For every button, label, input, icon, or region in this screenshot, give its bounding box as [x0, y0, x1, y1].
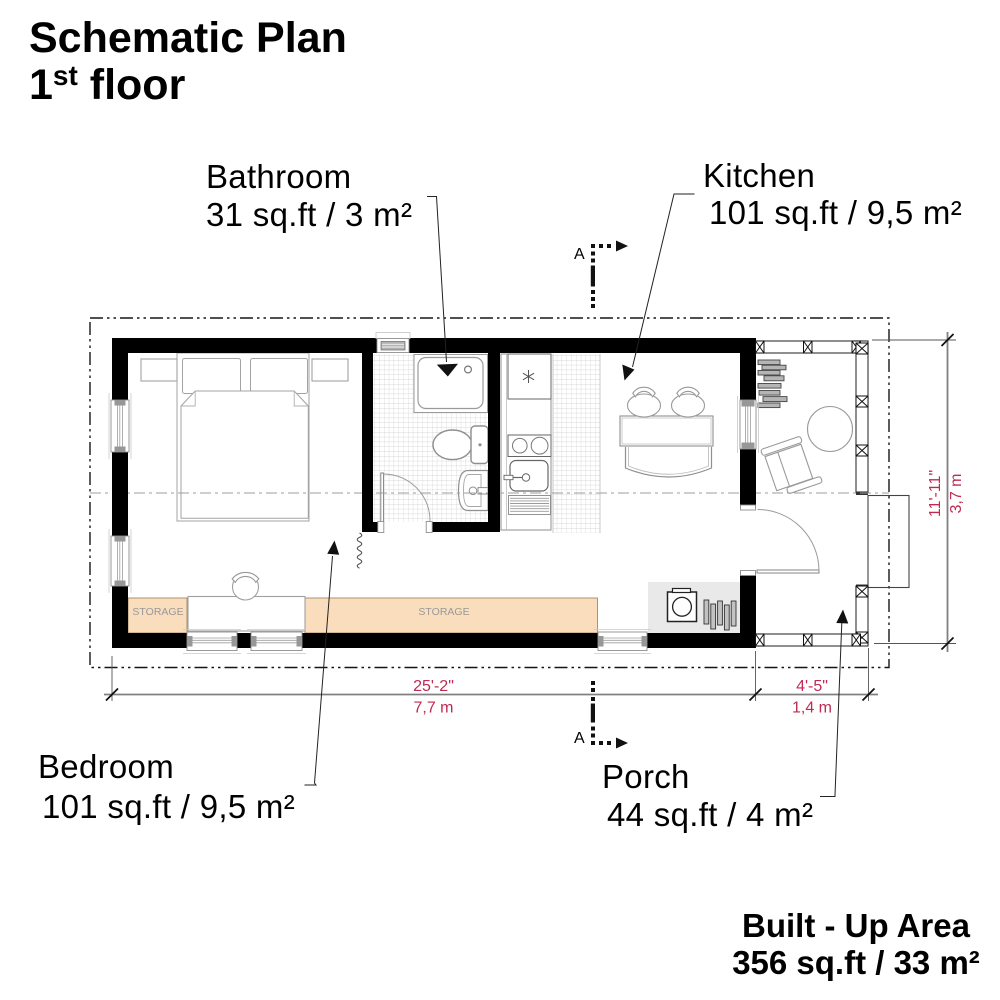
svg-text:1,4 m: 1,4 m — [792, 700, 832, 717]
svg-text:7,7 m: 7,7 m — [413, 700, 453, 717]
svg-text:STORAGE: STORAGE — [418, 606, 469, 618]
svg-text:Schematic Plan: Schematic Plan — [29, 14, 347, 62]
svg-text:3,7 m: 3,7 m — [948, 473, 965, 513]
svg-text:44 sq.ft / 4 m²: 44 sq.ft / 4 m² — [607, 796, 813, 833]
svg-text:A: A — [574, 246, 585, 263]
svg-text:101 sq.ft / 9,5 m²: 101 sq.ft / 9,5 m² — [42, 788, 295, 825]
svg-text:Bedroom: Bedroom — [38, 748, 174, 785]
svg-text:A: A — [574, 730, 585, 747]
svg-text:25'-2": 25'-2" — [413, 678, 454, 695]
svg-text:Built - Up Area: Built - Up Area — [742, 907, 971, 944]
svg-text:101 sq.ft / 9,5 m²: 101 sq.ft / 9,5 m² — [709, 194, 962, 231]
svg-text:Kitchen: Kitchen — [703, 157, 815, 194]
svg-text:31 sq.ft / 3 m²: 31 sq.ft / 3 m² — [206, 196, 412, 233]
svg-text:Bathroom: Bathroom — [206, 158, 351, 195]
svg-text:STORAGE: STORAGE — [132, 606, 183, 618]
svg-text:356 sq.ft / 33 m²: 356 sq.ft / 33 m² — [732, 944, 980, 981]
svg-text:11'-11": 11'-11" — [927, 470, 944, 517]
svg-text:4'-5": 4'-5" — [796, 678, 828, 695]
svg-text:Porch: Porch — [602, 758, 690, 795]
svg-text:1st floor: 1st floor — [29, 60, 186, 109]
